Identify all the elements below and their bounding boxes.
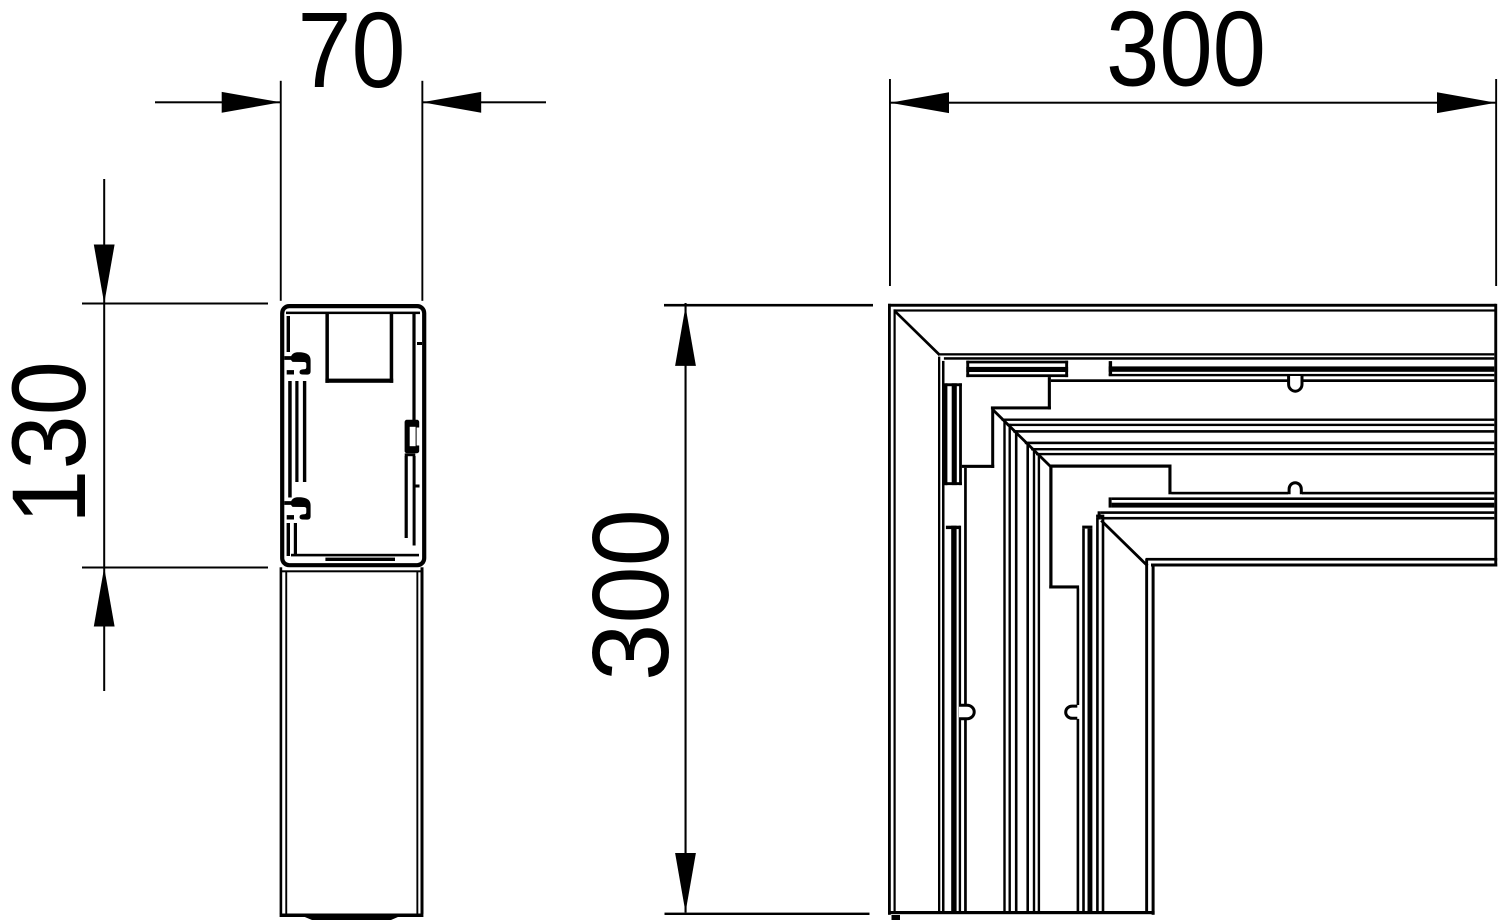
svg-text:300: 300 [570, 509, 692, 681]
svg-text:130: 130 [0, 361, 108, 524]
svg-text:70: 70 [298, 0, 406, 110]
svg-text:300: 300 [1106, 0, 1266, 109]
